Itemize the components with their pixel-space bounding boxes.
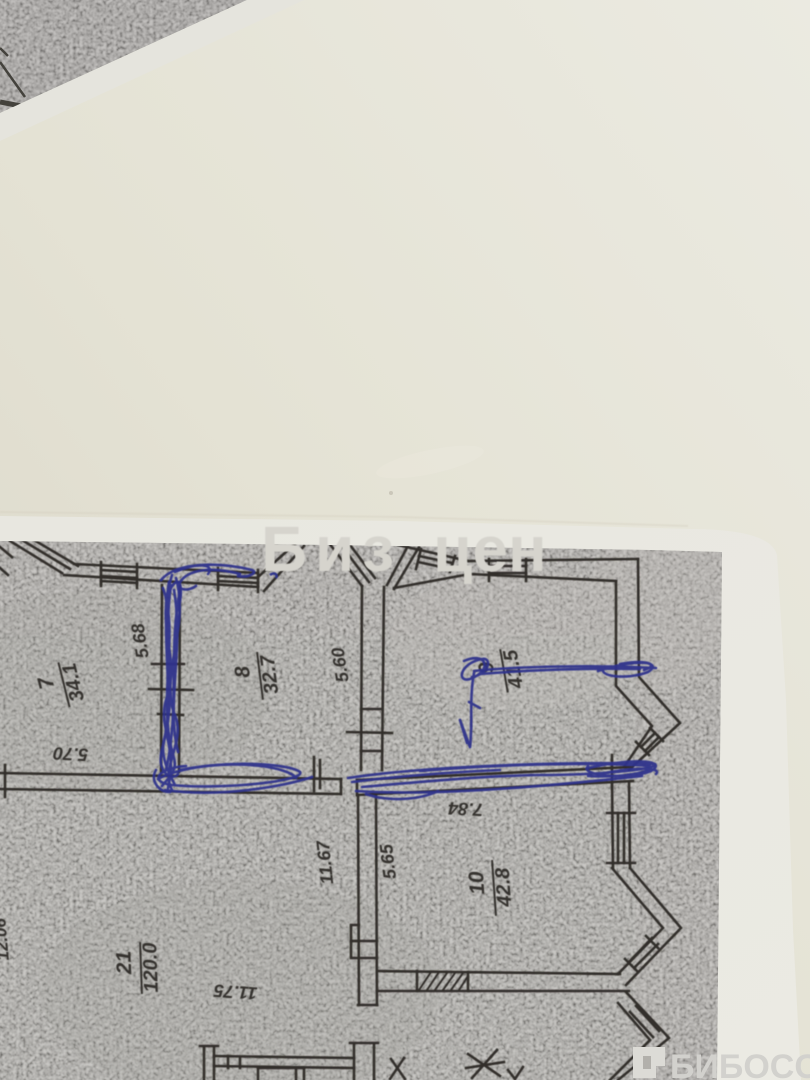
svg-text:БИБОСС: БИБОСС <box>670 1048 810 1080</box>
svg-text:21: 21 <box>112 950 136 975</box>
svg-text:7.84: 7.84 <box>448 798 484 820</box>
svg-text:10: 10 <box>465 870 490 895</box>
svg-text:11.75: 11.75 <box>212 980 258 1003</box>
svg-text:120.0: 120.0 <box>139 942 163 993</box>
svg-text:Биз: Биз <box>261 513 402 585</box>
svg-text:42.8: 42.8 <box>492 866 517 908</box>
svg-text:цен: цен <box>433 513 547 585</box>
svg-text:5.70: 5.70 <box>53 743 89 765</box>
